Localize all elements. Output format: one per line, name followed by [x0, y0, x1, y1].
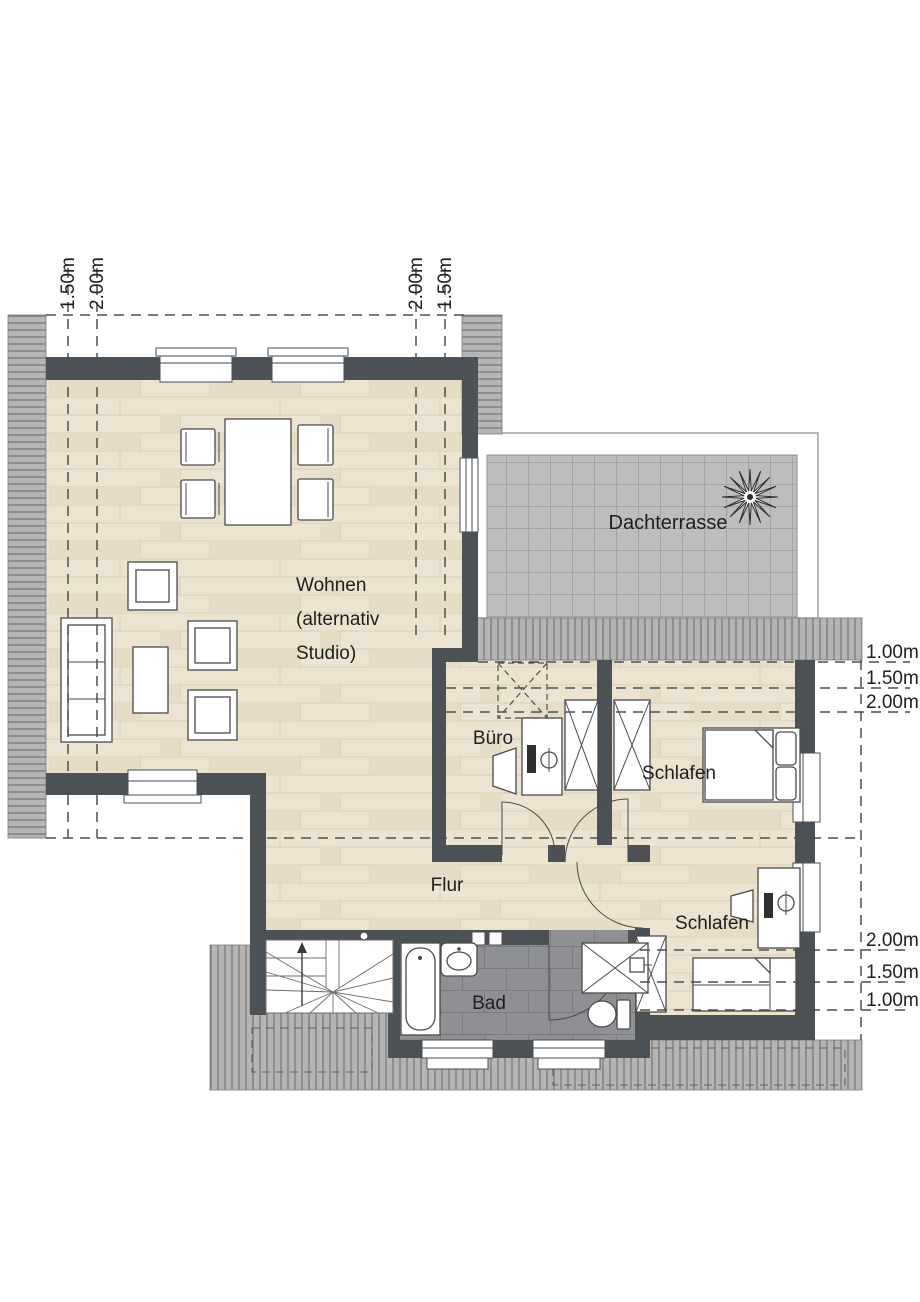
room-label-wohnen-alt1: (alternativ [296, 609, 380, 630]
desk [522, 718, 562, 795]
room-label-buero: Büro [473, 728, 513, 749]
dim-label-right-200: 2.00m [866, 692, 919, 713]
room-label-schlafen-1: Schlafen [642, 763, 716, 784]
stair-marker [360, 932, 368, 940]
computer-icon [527, 745, 536, 773]
room-label-dachterrasse: Dachterrasse [609, 512, 728, 534]
pillow [776, 732, 796, 765]
side-table [128, 562, 177, 610]
floor-plan-drawing: Wohnen (alternativ Studio) Dachterrasse … [0, 0, 920, 1302]
armchair [188, 690, 237, 740]
armchair [188, 621, 237, 670]
toilet [588, 1000, 630, 1029]
dim-label-rightlow-200: 2.00m [866, 930, 919, 951]
computer-icon [764, 893, 773, 918]
floor-plan-page: Wohnen (alternativ Studio) Dachterrasse … [0, 0, 920, 1302]
hatch-band-left [8, 315, 46, 838]
room-label-wohnen-alt2: Studio) [296, 643, 356, 664]
dim-label-topmid-200: 2.00m [406, 257, 427, 310]
shower-head-icon [630, 958, 644, 972]
stairs [266, 932, 393, 1013]
room-label-wohnen: Wohnen [296, 575, 366, 596]
dim-label-rightlow-150: 1.50m [866, 962, 919, 983]
wardrobe [565, 700, 598, 790]
dim-label-right-150: 1.50m [866, 668, 919, 689]
washbasin [441, 943, 477, 976]
room-label-bad: Bad [472, 993, 506, 1014]
window-wohnen-north-2 [268, 348, 348, 382]
window-wohnen-north-1 [156, 348, 236, 382]
dim-label-topleft-150: 1.50m [58, 257, 79, 310]
plant-icon [722, 469, 778, 525]
dim-label-topmid-150: 1.50m [435, 257, 456, 310]
dim-label-topleft-200: 2.00m [87, 257, 108, 310]
hatch-band-terrace-south [470, 618, 862, 660]
pillow [776, 767, 796, 800]
terrace-door [460, 458, 478, 532]
window-bad-south-2 [533, 1040, 605, 1069]
window-wohnen-south [124, 770, 201, 803]
bed-single [693, 958, 796, 1011]
office-chair [493, 748, 516, 794]
coffee-table [133, 647, 168, 713]
bath-niche-2 [489, 932, 502, 945]
dim-label-rightlow-100: 1.00m [866, 990, 919, 1011]
dining-table [225, 419, 291, 525]
room-label-schlafen-2: Schlafen [675, 913, 749, 934]
bathtub [401, 943, 440, 1035]
dim-label-right-100: 1.00m [866, 642, 919, 663]
bed-double [703, 728, 800, 802]
desk [758, 868, 800, 948]
room-label-flur: Flur [431, 875, 464, 896]
window-bad-south-1 [422, 1040, 493, 1069]
